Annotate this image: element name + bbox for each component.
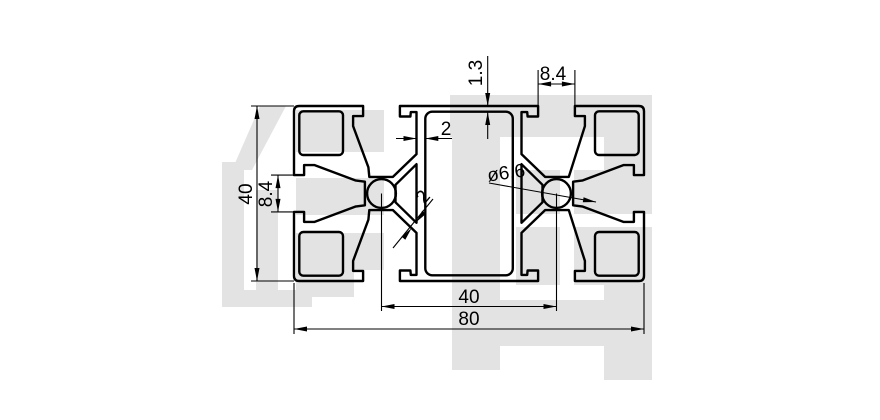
dim-web-thickness-label: 2 — [441, 119, 452, 140]
dim-overall-width-label: 80 — [458, 309, 479, 330]
watermark-stroke — [296, 233, 354, 297]
dim-top-slot-label: 8.4 — [540, 64, 567, 85]
watermark-stroke — [232, 106, 286, 170]
dim-side-slot: 8.4 — [256, 175, 294, 212]
dim-web-thickness: 2 — [396, 119, 452, 141]
arrowhead — [425, 136, 438, 141]
arrowhead — [294, 327, 307, 332]
dim-hole-pitch-label: 40 — [458, 287, 479, 308]
watermark-gap — [516, 214, 652, 227]
watermark-stroke — [222, 162, 244, 304]
technical-drawing-canvas: 40 8.4 1.3 8.4 — [0, 0, 880, 420]
dim-side-slot-label: 8.4 — [256, 180, 277, 207]
dim-wall-thickness-label: 1.3 — [466, 60, 487, 86]
drawing-svg: 40 8.4 1.3 8.4 — [0, 0, 880, 420]
arrowhead — [382, 304, 395, 309]
arrowhead — [404, 136, 417, 141]
dim-overall-height-label: 40 — [236, 183, 257, 204]
arrowhead — [402, 228, 412, 240]
watermark-stroke — [296, 110, 384, 152]
